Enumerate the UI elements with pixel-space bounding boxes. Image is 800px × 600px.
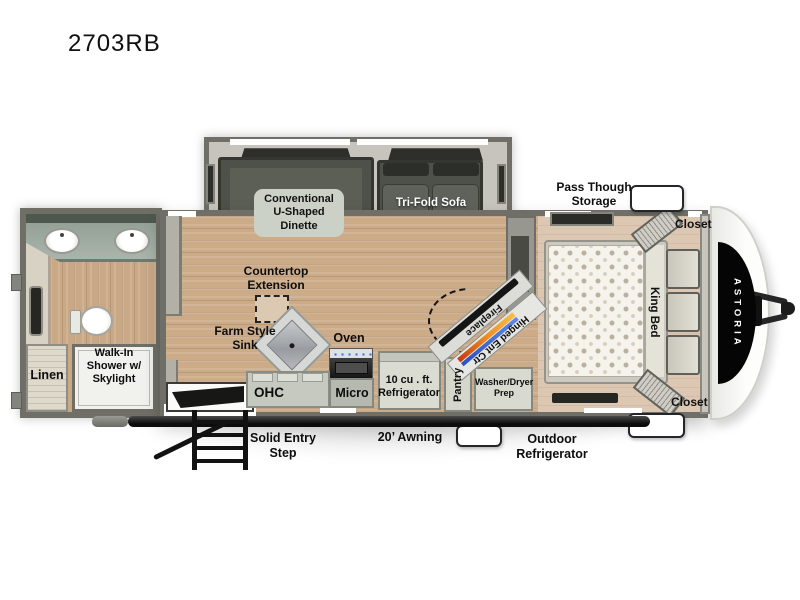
baggage-door <box>456 425 502 447</box>
pass-storage-label: Pass Though Storage <box>556 180 631 208</box>
king-bed-quilt <box>548 245 644 377</box>
oven-cooktop-knobs <box>330 349 372 358</box>
rear-frame-tab-top <box>11 274 22 291</box>
linen-label: Linen <box>30 368 63 383</box>
shower-label: Walk-In Shower w/ Skylight <box>87 347 141 386</box>
headboard-cushion-2 <box>666 292 700 332</box>
washer-dryer-label: Washer/Dryer Prep <box>475 377 533 398</box>
step-rung-4 <box>192 459 248 463</box>
entry-step-label: Solid Entry Step <box>250 431 316 461</box>
front-wall <box>700 214 710 414</box>
ohc-drawer-3 <box>302 373 323 382</box>
pass-through-storage-door <box>630 185 684 212</box>
u-dinette-label: Conventional U-Shaped Dinette <box>254 189 344 237</box>
closet-bottom-label: Closet <box>671 395 708 409</box>
headboard-cushion-1 <box>666 249 700 289</box>
king-bed-label: King Bed <box>643 282 665 342</box>
bedroom-top-window <box>550 212 614 226</box>
ohc-drawer-1 <box>252 373 273 382</box>
micro-label: Micro <box>335 386 368 401</box>
foot-bench <box>552 393 618 403</box>
closet-top-label: Closet <box>675 217 712 231</box>
ohc-label: OHC <box>254 385 284 401</box>
sewer-bumper <box>92 416 128 427</box>
outdoor-fridge-label: Outdoor Refrigerator <box>516 432 588 462</box>
oven-door <box>335 362 368 374</box>
bathroom-window <box>29 286 43 336</box>
window-slit-bottom-kitchen <box>320 408 356 413</box>
step-rung-3 <box>192 446 248 450</box>
faucet-left <box>60 233 64 237</box>
slide-side-window-right <box>497 164 506 204</box>
farm-sink-label: Farm Style Sink <box>214 324 275 352</box>
toilet-bowl <box>80 306 113 336</box>
slide-window-top-right <box>357 139 488 145</box>
brand-decal-text: ASTORIA <box>732 278 743 349</box>
refrigerator-top <box>380 353 439 362</box>
headboard-cushion-3 <box>666 335 700 375</box>
vanity-sink-left <box>44 228 80 254</box>
hitch-coupler <box>781 302 795 315</box>
vanity-backsplash <box>26 214 156 223</box>
page-title: 2703RB <box>68 30 161 58</box>
oven-label: Oven <box>333 331 364 346</box>
sofa-headrest-right <box>433 163 479 176</box>
awning-label: 20’ Awning <box>378 430 443 445</box>
refrigerator-label: 10 cu . ft. Refrigerator <box>378 374 440 399</box>
floorplan-canvas: 2703RB Conventional U-Shaped Dinette Tri… <box>0 0 800 600</box>
pantry-label: Pantry <box>444 357 472 412</box>
sofa-headrest-left <box>383 163 429 176</box>
rear-frame-tab-bottom <box>11 392 22 409</box>
countertop-ext-label: Countertop Extension <box>244 264 309 292</box>
ohc-drawer-2 <box>277 373 298 382</box>
slide-side-window-left <box>206 164 215 204</box>
oven-body <box>330 358 372 378</box>
wall-bath-kitchen <box>166 216 182 316</box>
sofa-label: Tri-Fold Sofa <box>396 197 466 211</box>
slide-window-top-left <box>230 139 350 145</box>
vanity-sink-right <box>114 228 150 254</box>
faucet-right <box>130 233 134 237</box>
oven-unit <box>329 348 373 378</box>
